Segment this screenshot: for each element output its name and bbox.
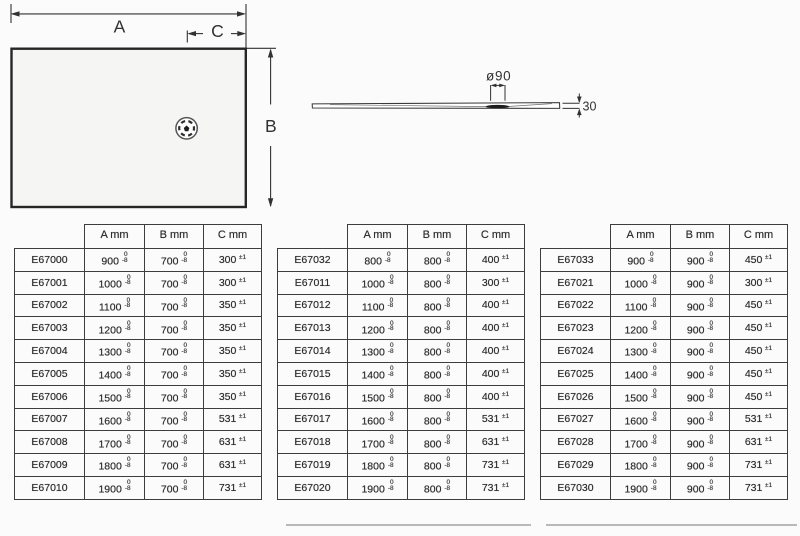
svg-text:C: C — [211, 21, 224, 41]
svg-text:ø90: ø90 — [486, 69, 511, 84]
svg-text:30: 30 — [583, 100, 597, 114]
svg-text:A: A — [114, 17, 126, 37]
svg-text:B: B — [265, 116, 277, 136]
